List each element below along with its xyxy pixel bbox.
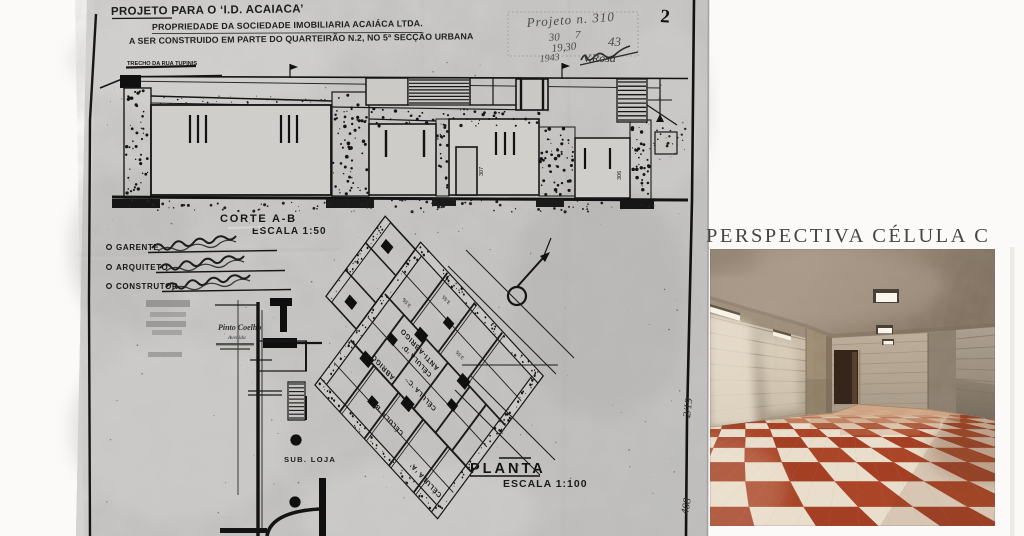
svg-text:Avenida: Avenida <box>227 335 246 341</box>
svg-text:307: 307 <box>479 167 485 176</box>
svg-text:43: 43 <box>608 34 622 49</box>
svg-text:1943: 1943 <box>539 52 560 65</box>
svg-text:ESCALA 1:100: ESCALA 1:100 <box>503 478 588 490</box>
svg-text:V.Rosa: V.Rosa <box>583 51 616 65</box>
svg-text:PERSPECTIVA CÉLULA C: PERSPECTIVA CÉLULA C <box>706 224 990 247</box>
svg-text:7: 7 <box>575 29 581 41</box>
svg-text:306: 306 <box>617 171 623 180</box>
svg-text:2/19: 2/19 <box>681 397 695 418</box>
svg-text:Pinto Coelho: Pinto Coelho <box>218 323 261 332</box>
svg-text:ESCALA 1:50: ESCALA 1:50 <box>252 226 327 237</box>
svg-text:PLANTA: PLANTA <box>470 461 546 477</box>
svg-text:SUB. LOJA: SUB. LOJA <box>284 455 336 464</box>
svg-text:2: 2 <box>660 6 671 28</box>
svg-text:CORTE A-B: CORTE A-B <box>220 213 297 225</box>
